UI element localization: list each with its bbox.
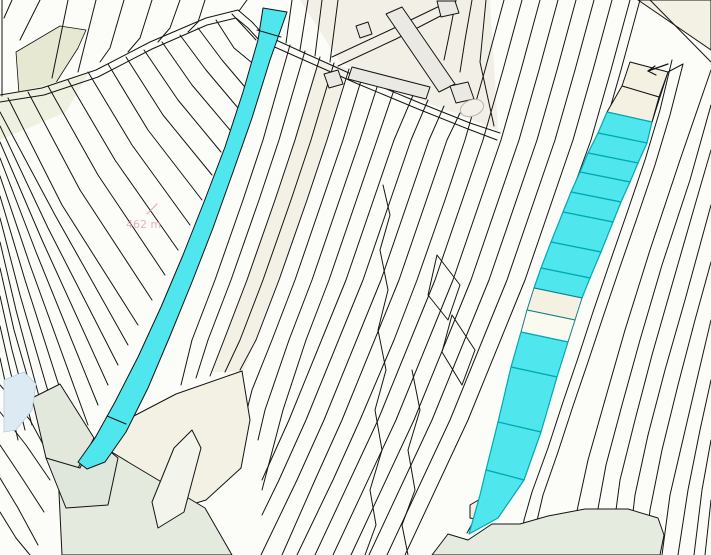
- west-strip-line: [48, 86, 165, 275]
- west-strip-line: [8, 98, 138, 325]
- east-strip-line: [705, 500, 711, 555]
- west-strip-line: [0, 478, 38, 545]
- center-strip-line: [262, 93, 414, 480]
- east-strip-line: [610, 150, 711, 555]
- west-strip-line: [0, 142, 108, 385]
- west-strip-line: [0, 112, 128, 345]
- corner-strip-line: [4, 0, 12, 18]
- farm-plot-line: [286, 0, 292, 43]
- corner-strip-line: [128, 0, 152, 52]
- highlighted-parcel-cell[interactable]: [498, 367, 557, 432]
- west-strip-line: [144, 50, 221, 152]
- west-strip-line: [28, 92, 152, 300]
- distance-label: 462 m: [126, 218, 161, 231]
- east-strip-line: [694, 440, 711, 555]
- jagged-boundary: [428, 255, 460, 320]
- west-strip-line: [68, 80, 178, 250]
- map-canvas[interactable]: 462 m: [0, 0, 711, 555]
- west-strip-line: [232, 14, 256, 40]
- cadastral-map-viewport[interactable]: 462 m: [0, 0, 711, 555]
- west-strip-line: [0, 126, 118, 365]
- west-strip-line: [0, 445, 44, 512]
- west-strip-line: [180, 35, 238, 108]
- corner-strip-line: [20, 0, 40, 40]
- bottom-green-parcel: [432, 509, 664, 555]
- center-strip-line: [262, 87, 395, 490]
- farm-plot-line: [300, 0, 308, 50]
- west-strip-line: [108, 64, 202, 200]
- highlighted-parcel-cell[interactable]: [486, 422, 541, 480]
- corner-strip-line: [100, 0, 124, 62]
- corner-strip-line: [158, 0, 180, 42]
- west-strip-line: [198, 28, 244, 86]
- center-strip-line: [210, 57, 320, 376]
- jagged-boundary: [365, 185, 390, 555]
- road-junction-tick: [239, 0, 247, 11]
- west-strip-line: [0, 512, 30, 555]
